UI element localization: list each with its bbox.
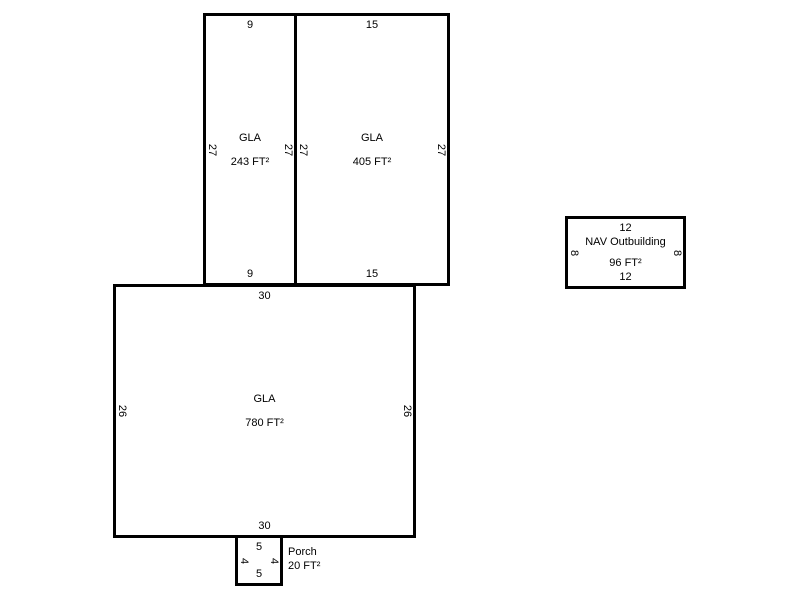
floor-plan-sketch: 9 9 27 27 GLA 243 FT² 15 15 27 27 GLA 40… [0,0,800,600]
unit-label: GLA 780 FT² [116,287,413,535]
dim-left: 4 [238,553,250,569]
unit-area: 20 FT² [288,559,320,573]
dim-right: 4 [268,553,280,569]
unit-outbuilding: 12 12 8 8 NAV Outbuilding 96 FT² [565,216,686,289]
unit-area: 405 FT² [353,156,392,168]
porch-annotation: Porch 20 FT² [288,545,320,573]
unit-name: NAV Outbuilding [585,236,666,248]
unit-label: NAV Outbuilding 96 FT² [568,219,683,286]
unit-porch: 5 5 4 4 [235,535,283,586]
unit-name: GLA [361,132,383,144]
unit-area: 243 FT² [231,156,270,168]
unit-gla-405: 15 15 27 27 GLA 405 FT² [294,13,450,286]
unit-label: GLA 243 FT² [206,16,294,283]
unit-name: Porch [288,545,320,559]
unit-area: 780 FT² [245,417,284,429]
unit-name: GLA [239,132,261,144]
unit-label: GLA 405 FT² [297,16,447,283]
unit-area: 96 FT² [609,257,641,269]
dim-bottom: 5 [238,568,280,580]
unit-gla-780: 30 30 26 26 GLA 780 FT² [113,284,416,538]
dim-top: 5 [238,541,280,553]
unit-name: GLA [253,393,275,405]
unit-gla-243: 9 9 27 27 GLA 243 FT² [203,13,297,286]
